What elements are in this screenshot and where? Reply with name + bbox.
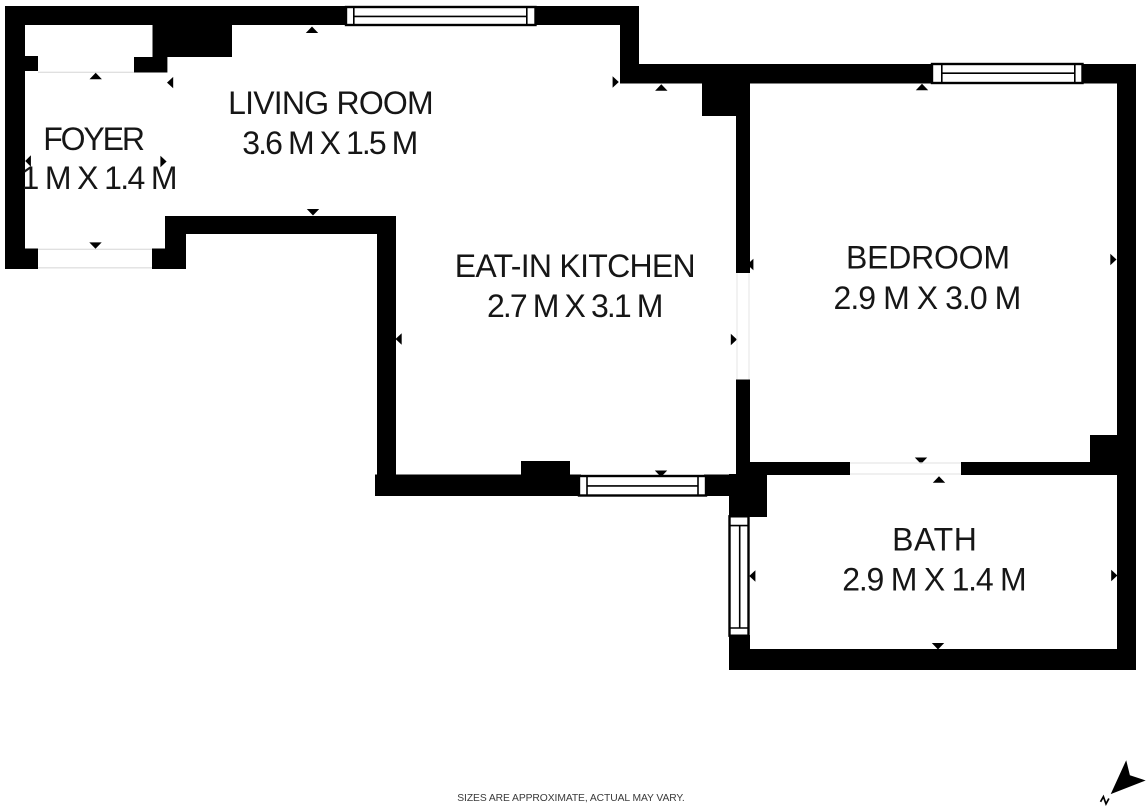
svg-text:FOYER: FOYER (43, 121, 145, 157)
svg-text:BEDROOM: BEDROOM (846, 239, 1010, 275)
svg-text:2.9 M X 3.0 M: 2.9 M X 3.0 M (834, 280, 1022, 316)
svg-text:1 M X 1.4 M: 1 M X 1.4 M (22, 160, 178, 196)
svg-text:EAT-IN KITCHEN: EAT-IN KITCHEN (455, 248, 696, 284)
svg-text:SIZES ARE APPROXIMATE, ACTUAL: SIZES ARE APPROXIMATE, ACTUAL MAY VARY. (457, 793, 685, 804)
svg-text:BATH: BATH (892, 522, 977, 558)
svg-text:3.6 M X 1.5 M: 3.6 M X 1.5 M (242, 125, 418, 161)
svg-text:2.7 M X 3.1 M: 2.7 M X 3.1 M (487, 288, 663, 324)
svg-text:LIVING ROOM: LIVING ROOM (228, 85, 434, 121)
svg-text:2.9 M X 1.4 M: 2.9 M X 1.4 M (842, 561, 1026, 597)
